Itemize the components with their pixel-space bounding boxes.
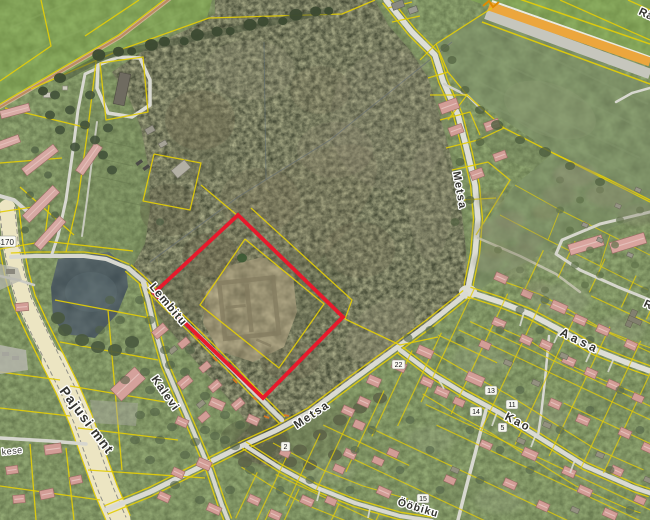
svg-text:2: 2	[284, 444, 288, 451]
svg-text:11: 11	[508, 402, 515, 409]
svg-text:15: 15	[419, 496, 427, 503]
svg-text:14: 14	[472, 409, 480, 416]
svg-text:5: 5	[501, 425, 505, 432]
svg-text:13: 13	[487, 388, 495, 395]
svg-text:4170: 4170	[0, 238, 14, 247]
svg-text:22: 22	[395, 362, 403, 369]
